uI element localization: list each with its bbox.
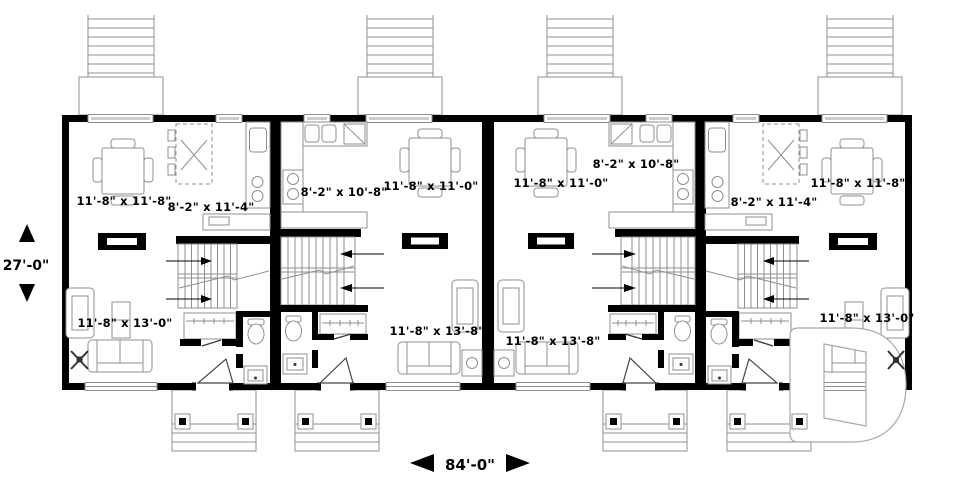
unit-2-kitchen-label: 8'-2" x 10'-8" — [301, 185, 388, 199]
width-dimension-label: 84'-0" — [445, 456, 495, 474]
rear-deck-unit-2 — [358, 15, 442, 115]
height-dimension-label: 27'-0" — [3, 258, 50, 274]
unit-1-living-label: 11'-8" x 13'-0" — [77, 316, 172, 330]
unit-4-dining-label: 11'-8" x 11'-8" — [810, 176, 905, 190]
rear-deck-unit-4 — [818, 15, 902, 115]
unit-1-kitchen-label: 8'-2" x 11'-4" — [168, 200, 255, 214]
unit-2-living-label: 11'-8" x 13'-8" — [389, 324, 484, 338]
floorplan-page: 11'-8" x 11'-8" 8'-2" x 11'-4" 11'-8" x … — [0, 0, 960, 497]
width-dimension: 84'-0" — [410, 454, 530, 474]
unit-3-dining-label: 11'-8" x 11'-0" — [513, 176, 608, 190]
up-arrow-icon — [19, 224, 35, 242]
right-arrow-icon — [506, 454, 530, 472]
front-porch-unit-2 — [295, 390, 379, 451]
unit-3-living-label: 11'-8" x 13'-8" — [505, 334, 600, 348]
unit-4-kitchen-label: 8'-2" x 11'-4" — [731, 195, 818, 209]
down-arrow-icon — [19, 284, 35, 302]
unit-4-living-label: 11'-8" x 13'-0" — [819, 311, 914, 325]
unit-2-dining-label: 11'-8" x 11'-0" — [383, 179, 478, 193]
front-porch-unit-3 — [603, 390, 687, 451]
floorplan-drawing: 11'-8" x 11'-8" 8'-2" x 11'-4" 11'-8" x … — [0, 0, 960, 497]
rear-deck-unit-1 — [79, 15, 163, 115]
front-porch-unit-1 — [172, 390, 256, 451]
porch-post — [792, 414, 807, 429]
rear-deck-unit-3 — [538, 15, 622, 115]
unit-1-dining-label: 11'-8" x 11'-8" — [76, 194, 171, 208]
height-dimension: 27'-0" — [3, 224, 50, 302]
unit-3-kitchen-label: 8'-2" x 10'-8" — [593, 157, 680, 171]
left-arrow-icon — [410, 454, 434, 472]
